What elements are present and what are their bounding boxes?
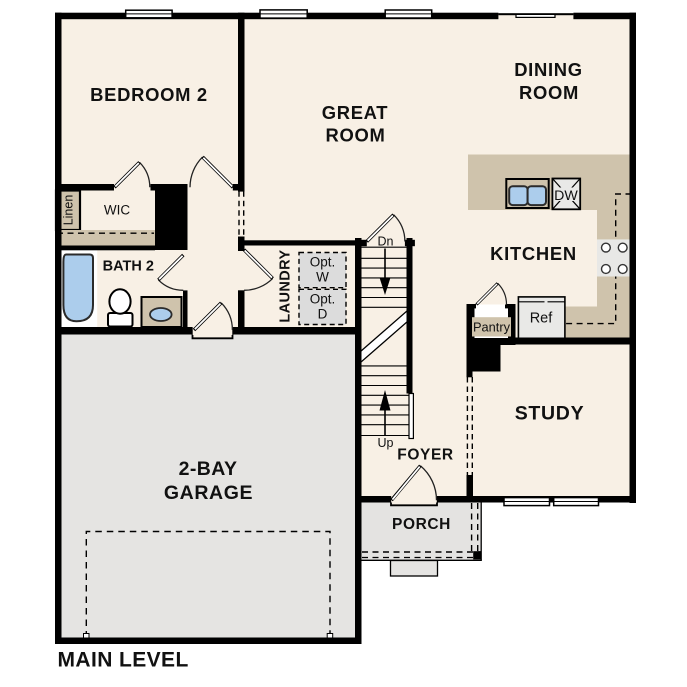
svg-text:MAIN LEVEL: MAIN LEVEL [58,648,189,671]
svg-text:GARAGE: GARAGE [164,482,253,504]
svg-text:Pantry: Pantry [473,320,511,335]
svg-text:Linen: Linen [62,195,76,226]
svg-text:Up: Up [378,436,394,450]
svg-text:KITCHEN: KITCHEN [490,243,577,264]
svg-text:LAUNDRY: LAUNDRY [277,249,293,322]
svg-text:D: D [318,306,328,321]
svg-text:Opt.: Opt. [310,291,336,306]
svg-text:STUDY: STUDY [515,403,585,425]
svg-text:WIC: WIC [104,203,130,218]
svg-text:Dn: Dn [378,235,394,249]
svg-text:DINING: DINING [514,59,583,80]
svg-text:BATH 2: BATH 2 [103,259,154,275]
svg-text:PORCH: PORCH [392,516,451,533]
svg-text:Opt.: Opt. [310,255,336,270]
svg-text:2-BAY: 2-BAY [179,458,238,480]
svg-text:Ref: Ref [530,311,554,327]
svg-text:DW: DW [554,188,578,204]
svg-text:ROOM: ROOM [325,125,385,146]
svg-text:FOYER: FOYER [397,446,453,463]
svg-text:GREAT: GREAT [322,102,389,123]
svg-text:W: W [316,270,329,285]
svg-text:ROOM: ROOM [519,82,579,103]
svg-text:BEDROOM 2: BEDROOM 2 [90,84,208,105]
